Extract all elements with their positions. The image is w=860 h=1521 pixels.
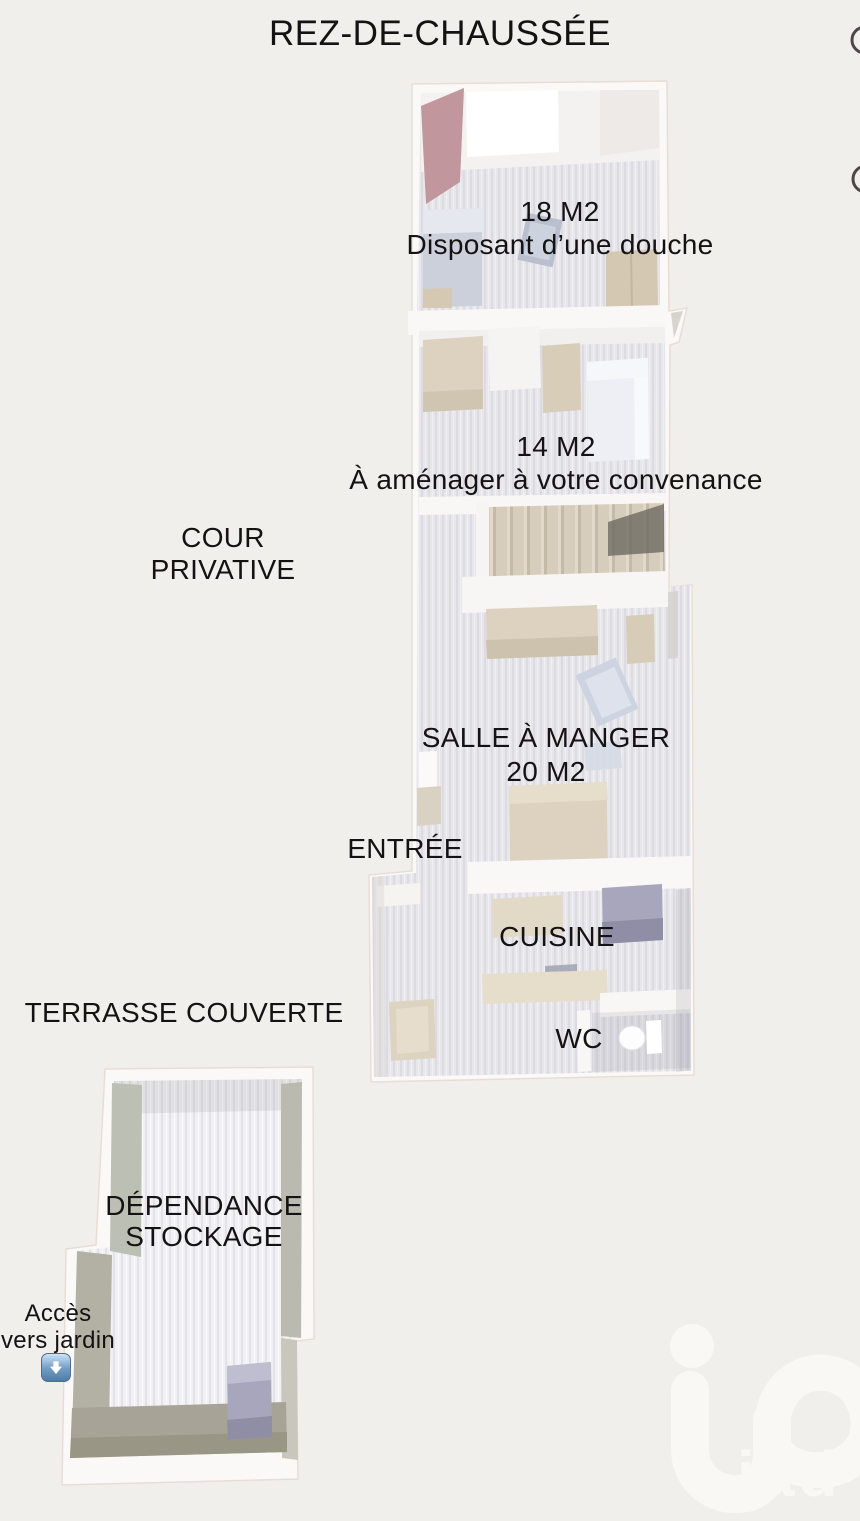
room-label-entree: ENTRÉE <box>347 832 462 865</box>
room-14m2-area: 14 M2 <box>349 430 762 463</box>
room-18m2-area: 18 M2 <box>406 195 713 228</box>
room-label-terrasse: TERRASSE COUVERTE <box>25 996 344 1029</box>
down-arrow-glyph <box>46 1358 66 1378</box>
dependance-building <box>62 1067 314 1485</box>
room-label-dependance: DÉPENDANCE STOCKAGE <box>105 1190 302 1252</box>
white-table <box>488 326 541 391</box>
page-title: REZ-DE-CHAUSSÉE <box>269 14 611 54</box>
iad-logo-dot <box>670 1324 714 1368</box>
room-14m2-note: À aménager à votre convenance <box>349 463 762 496</box>
dresser-left-front <box>423 389 483 412</box>
sofa-armrest <box>587 358 648 381</box>
iad-wordmark: iad <box>737 1437 841 1511</box>
room-label-cour: COUR PRIVATIVE <box>151 522 296 586</box>
toilet-bowl <box>619 1026 645 1050</box>
room-label-18m2: 18 M2 Disposant d’une douche <box>406 195 713 261</box>
left-wall-shade <box>372 876 386 1077</box>
room-18m2-note: Disposant d’une douche <box>406 228 713 261</box>
storage-box-front <box>227 1416 272 1440</box>
toilet-tank <box>646 1020 662 1054</box>
floor-rug-inner <box>396 1006 429 1054</box>
side-cabinet <box>626 614 655 664</box>
lower-counter <box>482 970 608 1004</box>
dresser-right <box>542 343 581 413</box>
room-label-wc: WC <box>555 1022 602 1055</box>
room-label-14m2: 14 M2 À aménager à votre convenance <box>349 430 762 496</box>
sideboard-front <box>486 636 598 659</box>
room-label-cuisine: CUISINE <box>499 920 615 953</box>
garden-access-label: Accès vers jardin <box>1 1300 115 1354</box>
floorplan-canvas: REZ-DE-CHAUSSÉE 18 M2 Disposant d’une do… <box>0 0 860 1521</box>
wall-shelf <box>417 786 441 826</box>
room-18m2-corner-shade <box>600 90 659 156</box>
dependance-top-shade <box>114 1079 302 1114</box>
room-label-salle: SALLE À MANGER 20 M2 <box>422 721 671 789</box>
window <box>466 90 559 157</box>
bedside-unit <box>423 288 452 308</box>
screen-edge-mark-icon <box>852 27 860 192</box>
right-wall-step-shade <box>668 591 678 659</box>
right-wall-shade <box>676 888 691 1072</box>
down-arrow-icon <box>41 1353 71 1382</box>
